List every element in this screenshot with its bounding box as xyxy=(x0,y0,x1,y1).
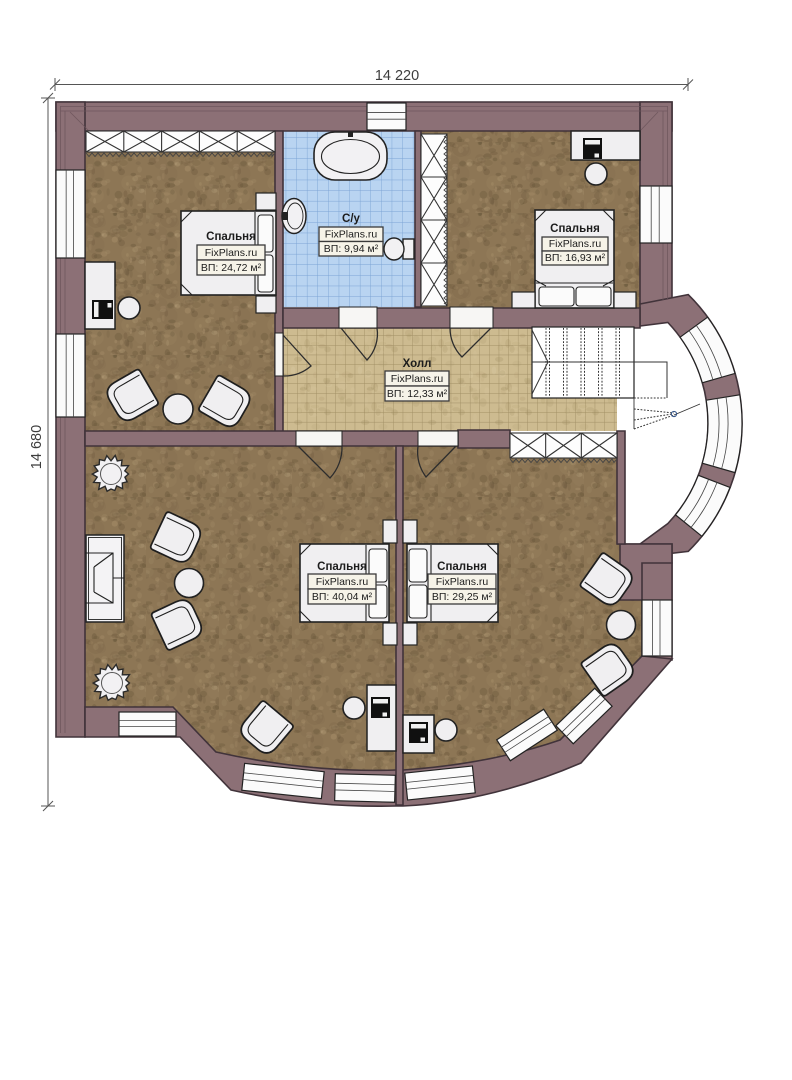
svg-text:Спальня: Спальня xyxy=(437,561,487,573)
svg-text:ВП: 12,33 м²: ВП: 12,33 м² xyxy=(387,388,448,400)
svg-text:Холл: Холл xyxy=(403,358,432,370)
svg-text:ВП: 40,04 м²: ВП: 40,04 м² xyxy=(312,591,373,603)
svg-text:ВП: 24,72 м²: ВП: 24,72 м² xyxy=(201,262,262,274)
svg-text:FixPlans.ru: FixPlans.ru xyxy=(325,229,378,241)
svg-text:ВП: 29,25 м²: ВП: 29,25 м² xyxy=(432,591,493,603)
svg-text:Спальня: Спальня xyxy=(206,231,256,243)
svg-text:FixPlans.ru: FixPlans.ru xyxy=(391,373,444,385)
svg-text:С/у: С/у xyxy=(342,213,361,225)
svg-text:Спальня: Спальня xyxy=(317,561,367,573)
svg-text:FixPlans.ru: FixPlans.ru xyxy=(205,247,258,259)
svg-text:14 220: 14 220 xyxy=(375,68,419,84)
svg-text:14 680: 14 680 xyxy=(29,425,45,469)
svg-text:FixPlans.ru: FixPlans.ru xyxy=(549,238,602,250)
svg-text:FixPlans.ru: FixPlans.ru xyxy=(316,576,369,588)
svg-text:ВП: 16,93 м²: ВП: 16,93 м² xyxy=(545,252,606,264)
svg-text:ВП: 9,94 м²: ВП: 9,94 м² xyxy=(324,243,379,255)
svg-text:FixPlans.ru: FixPlans.ru xyxy=(436,576,489,588)
svg-text:Спальня: Спальня xyxy=(550,223,600,235)
